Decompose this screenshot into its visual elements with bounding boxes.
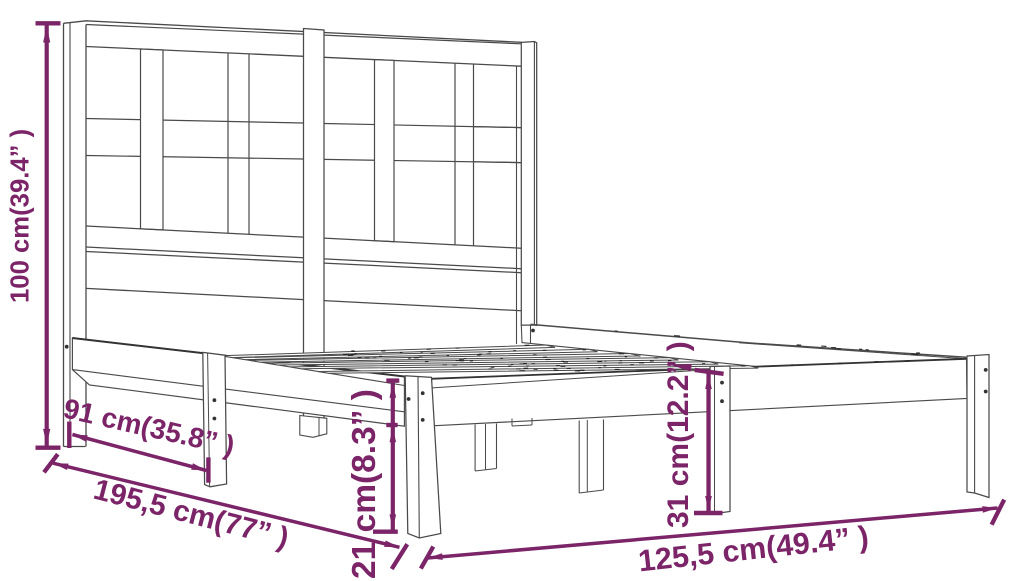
svg-text:21 cm(8.3” ): 21 cm(8.3” ): [346, 389, 383, 579]
svg-text:31 cm(12.2” ): 31 cm(12.2” ): [662, 341, 695, 528]
svg-text:100 cm(39.4” ): 100 cm(39.4” ): [7, 129, 35, 303]
